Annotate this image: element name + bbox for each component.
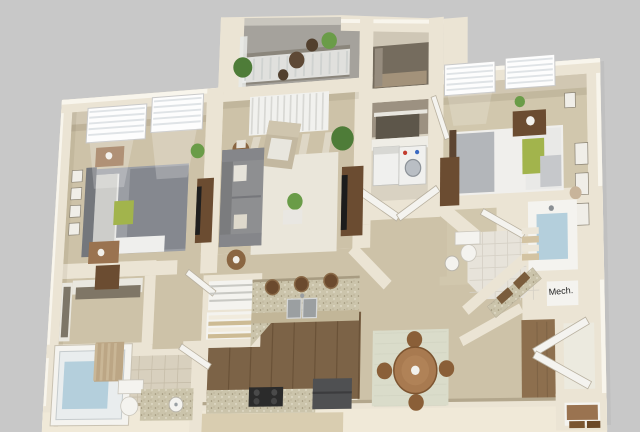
svg-text:Mech.: Mech. [548,285,573,297]
